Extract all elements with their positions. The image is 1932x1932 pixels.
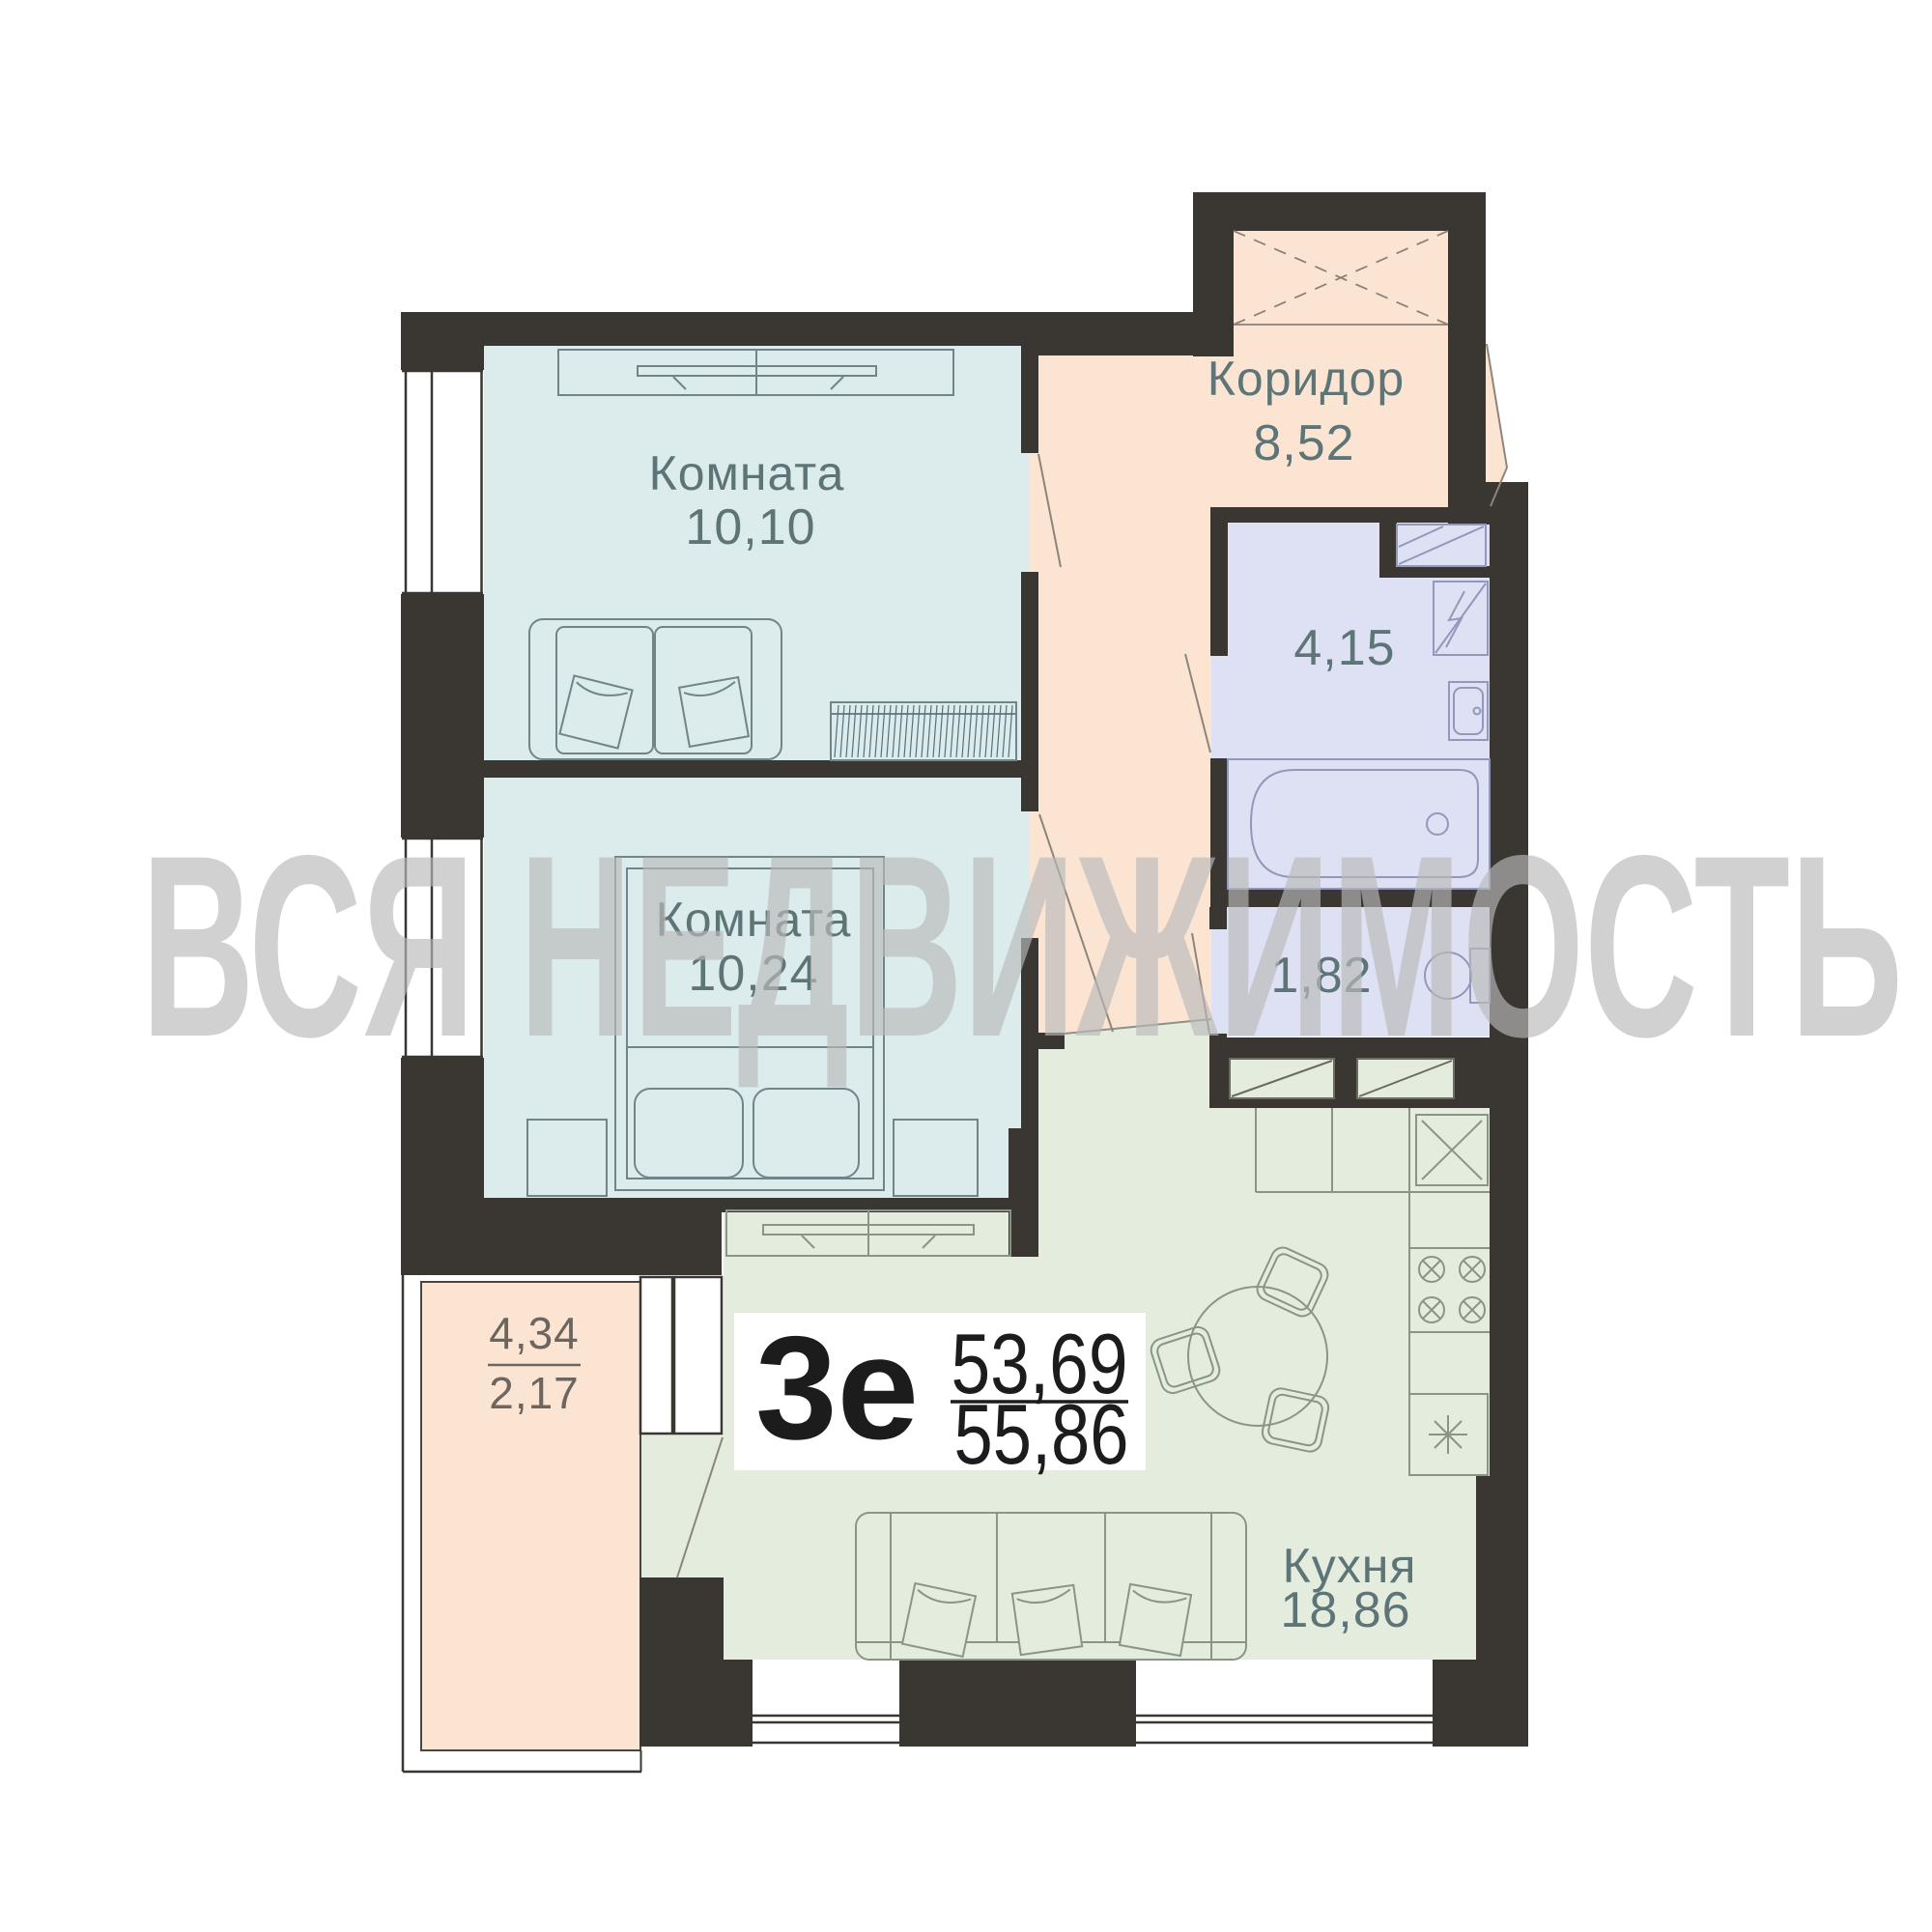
svg-text:10,10: 10,10 <box>685 499 815 555</box>
svg-text:Коридор: Коридор <box>1207 352 1405 406</box>
svg-text:Комната: Комната <box>649 446 845 500</box>
svg-text:4,34: 4,34 <box>489 1308 580 1358</box>
svg-text:ВСЯ НЕДВИЖИМОСТЬ: ВСЯ НЕДВИЖИМОСТЬ <box>141 801 1903 1091</box>
svg-text:3е: 3е <box>755 1306 919 1470</box>
svg-text:18,86: 18,86 <box>1280 1582 1410 1638</box>
svg-text:2,17: 2,17 <box>489 1368 580 1418</box>
svg-text:55,86: 55,86 <box>954 1386 1129 1482</box>
svg-text:8,52: 8,52 <box>1253 415 1354 471</box>
svg-text:4,15: 4,15 <box>1293 620 1395 676</box>
